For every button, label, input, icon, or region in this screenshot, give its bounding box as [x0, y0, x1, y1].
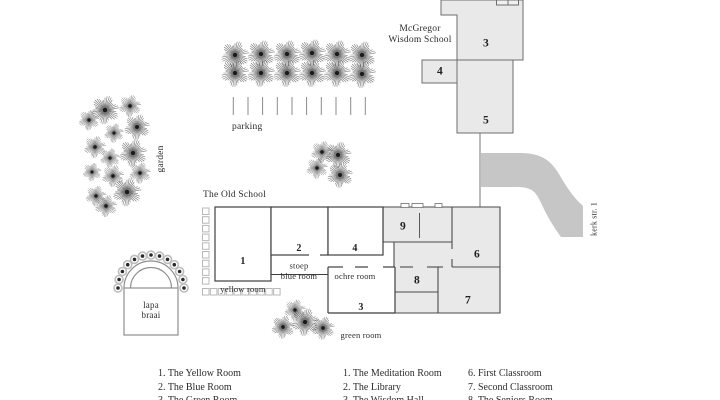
legend-item: 1. The Yellow Room	[158, 367, 241, 381]
legend-item: 8. The Seniors Room	[468, 394, 553, 400]
room9-label: 9	[400, 221, 406, 234]
room-yellow-name: yellow room	[220, 285, 265, 294]
legend-item: 2. The Library	[343, 381, 442, 395]
lapa-braai-structure	[114, 251, 188, 335]
stoep-label: stoep	[290, 261, 309, 270]
campus-map: McGregor Wisdom School 3 4 5 The Old Sch…	[0, 0, 720, 400]
room8-label: 8	[414, 275, 420, 288]
legend-item: 6. First Classroom	[468, 367, 553, 381]
building4-label: 4	[437, 66, 443, 79]
legend-old-school: 1. The Yellow Room 2. The Blue Room 3. T…	[158, 367, 241, 400]
room-green-label: 3 green room	[341, 285, 382, 358]
room-green-name: green room	[341, 331, 382, 340]
roof-box-right	[508, 0, 519, 5]
garden-label: garden	[156, 145, 166, 172]
room9-roof-ticks	[401, 204, 442, 208]
room-yellow-label: 1 yellow room	[220, 239, 265, 312]
street-label: kerk str. 1	[591, 202, 600, 236]
legend-item: 1. The Meditation Room	[343, 367, 442, 381]
arch-plants	[114, 251, 188, 292]
old-school-title: The Old School	[203, 190, 266, 200]
building5-label: 5	[483, 115, 489, 128]
room-blue-number: 2	[281, 244, 318, 254]
room-yellow-number: 1	[220, 257, 265, 267]
room6-label: 6	[474, 249, 480, 262]
legend-item: 7. Second Classroom	[468, 381, 553, 395]
room7-label: 7	[465, 295, 471, 308]
lapa-braai-label: lapa braai	[142, 300, 161, 320]
building3-label: 3	[483, 38, 489, 51]
legend-classrooms: 6. First Classroom 7. Second Classroom 8…	[468, 367, 553, 400]
room-ochre-number: 4	[335, 244, 376, 254]
room-ochre-name: ochre room	[335, 272, 376, 281]
parking-bay-lines	[233, 97, 365, 115]
school-name-label: McGregor Wisdom School	[388, 24, 451, 46]
building-3	[441, 0, 523, 60]
legend-item: 3. The Green Room	[158, 394, 241, 400]
room-green-number: 3	[341, 303, 382, 313]
parking-label: parking	[232, 122, 262, 132]
legend-item: 2. The Blue Room	[158, 381, 241, 395]
room-blue-name: blue room	[281, 272, 318, 281]
legend-item: 3. The Wisdom Hall	[343, 394, 442, 400]
legend-school-rooms: 1. The Meditation Room 2. The Library 3.…	[343, 367, 442, 400]
roof-box-left	[497, 0, 509, 5]
